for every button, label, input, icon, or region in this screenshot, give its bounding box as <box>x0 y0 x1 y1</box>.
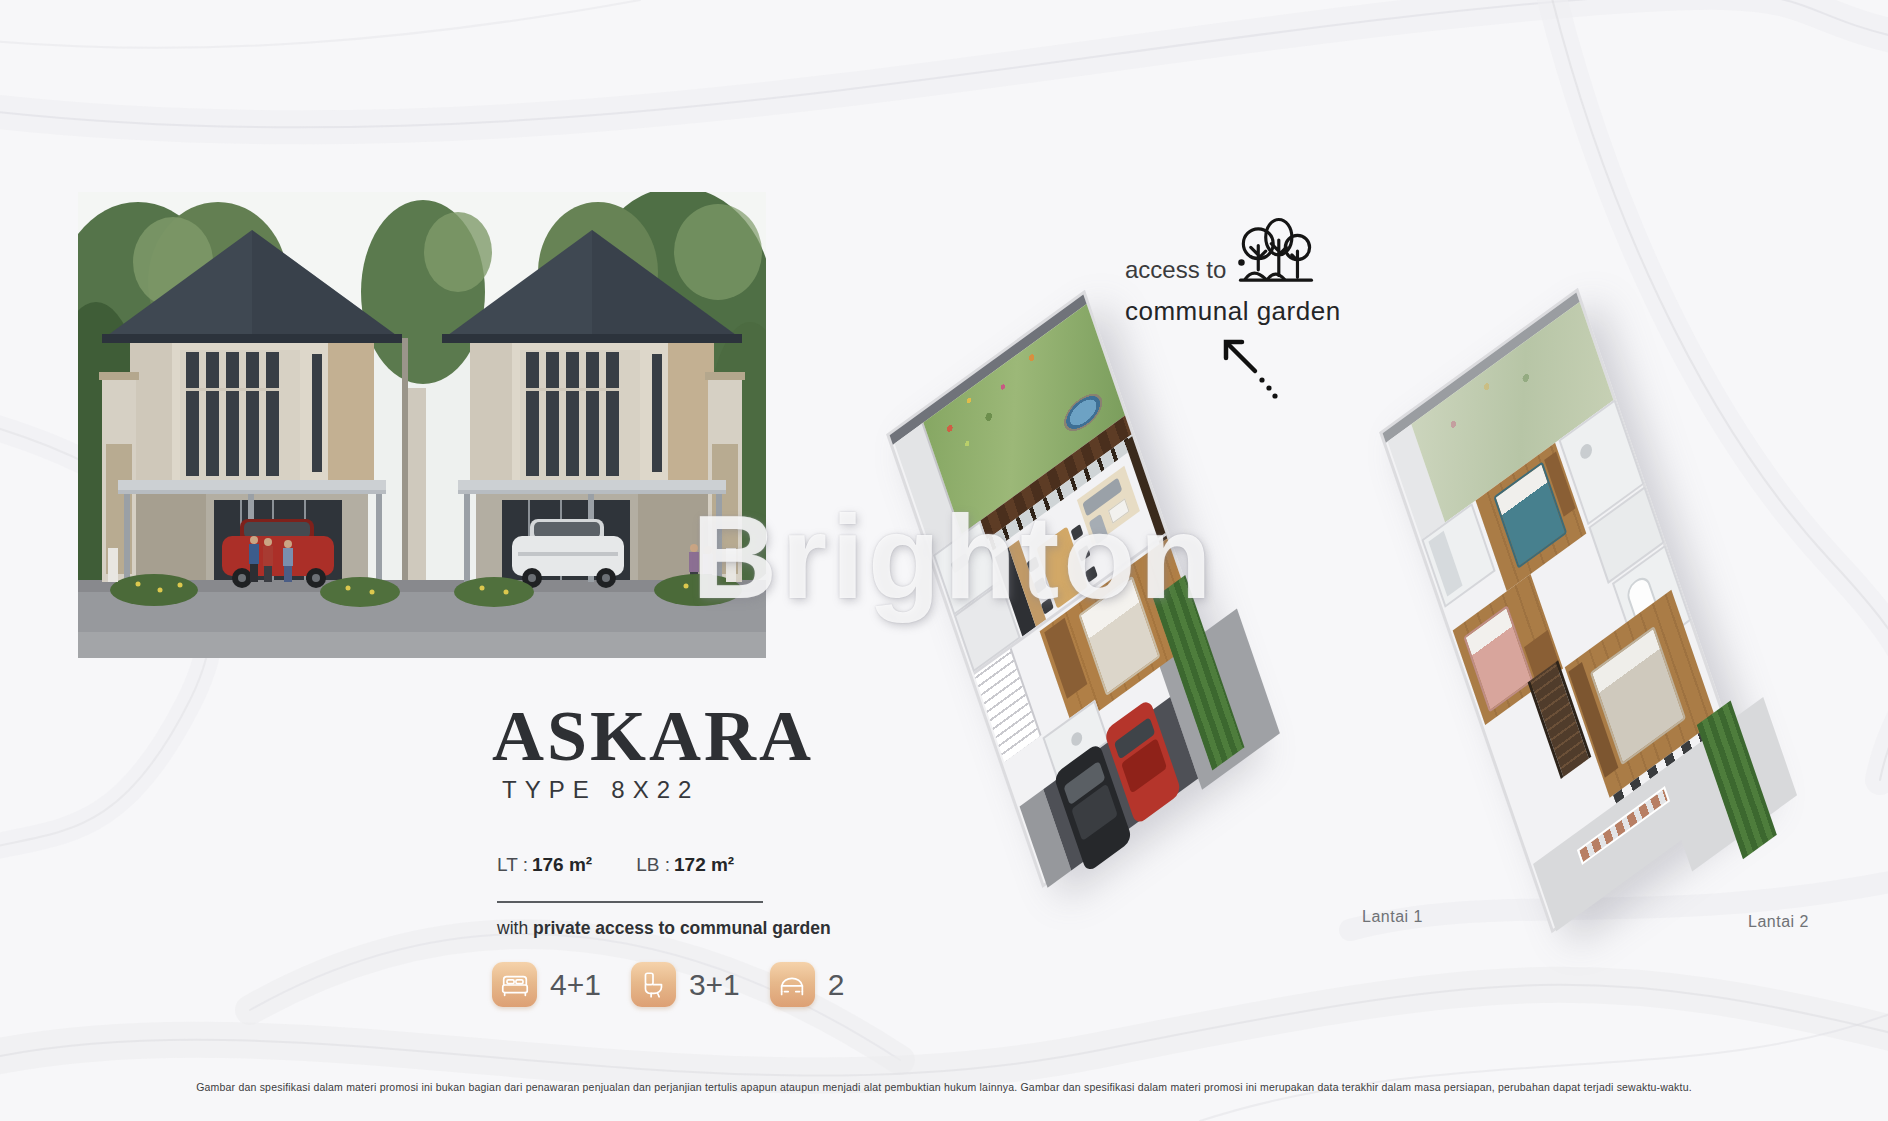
people-group <box>249 536 293 582</box>
house-number-post <box>108 548 118 582</box>
tagline-rest: private access to communal garden <box>533 918 831 938</box>
plan2-label: Lantai 2 <box>1748 913 1809 931</box>
features-row: 4+1 3+1 2 <box>492 962 844 1007</box>
car-icon <box>770 962 815 1007</box>
bush <box>110 574 198 606</box>
tagline: with private access to communal garden <box>497 918 831 939</box>
plan1-toilet <box>1070 730 1084 749</box>
product-type: TYPE 8X22 <box>502 776 840 804</box>
feature-carport: 2 <box>770 962 845 1007</box>
feature-bedrooms: 4+1 <box>492 962 601 1007</box>
divider-line <box>497 901 763 903</box>
bed-icon <box>492 962 537 1007</box>
product-name: ASKARA <box>492 700 840 772</box>
lb-value: 172 m² <box>674 854 734 875</box>
lt-value: 176 m² <box>532 854 592 875</box>
garden-callout-line1: access to <box>1125 256 1226 296</box>
trees-icon <box>1234 212 1318 296</box>
center-pillar <box>408 388 426 580</box>
toilet-icon <box>631 962 676 1007</box>
feature-bathrooms: 3+1 <box>631 962 740 1007</box>
tagline-prefix: with <box>497 918 528 938</box>
lt-label: LT : <box>497 854 528 875</box>
lb-label: LB : <box>636 854 670 875</box>
house-photo <box>78 192 766 658</box>
garden-callout-line2: communal garden <box>1125 296 1355 327</box>
bedrooms-count: 4+1 <box>550 968 601 1002</box>
disclaimer-text: Gambar dan spesifikasi dalam materi prom… <box>0 1081 1888 1093</box>
specs-row: LT :176 m² LB :172 m² <box>497 854 734 876</box>
plan2-toilet <box>1579 441 1594 461</box>
land-area: LT :176 m² <box>497 854 592 876</box>
title-block: ASKARA TYPE 8X22 <box>420 700 840 804</box>
arrow-up-left-icon <box>1218 336 1280 404</box>
building-area: LB :172 m² <box>636 854 734 876</box>
plan2-shower <box>1428 531 1462 597</box>
brand-watermark: Brighton <box>692 489 1216 625</box>
plan1-label: Lantai 1 <box>1362 908 1423 926</box>
bathrooms-count: 3+1 <box>689 968 740 1002</box>
carport-count: 2 <box>828 968 845 1002</box>
house-render-illustration <box>78 192 766 658</box>
poster: ASKARA TYPE 8X22 LT :176 m² LB :172 m² w… <box>0 0 1888 1121</box>
garden-callout: access to communal garden <box>1125 212 1355 327</box>
